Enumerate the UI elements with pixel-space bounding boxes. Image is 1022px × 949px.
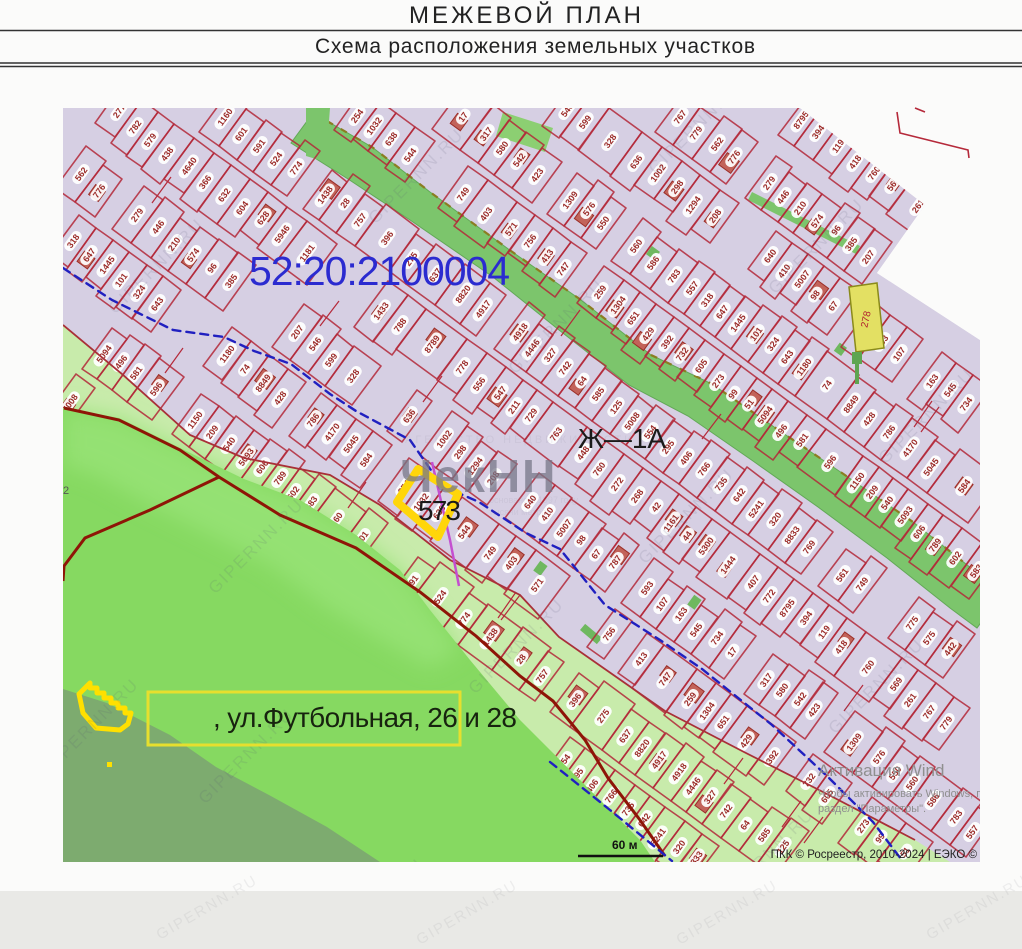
svg-text:60 м: 60 м <box>612 838 638 852</box>
svg-text:ПКК © Росреестр, 2010-2024 | Е: ПКК © Росреестр, 2010-2024 | ЕЭКО © <box>771 849 978 861</box>
svg-text:Активация Wind: Активация Wind <box>818 761 944 780</box>
svg-text:, ул.Футбольная, 26 и 28: , ул.Футбольная, 26 и 28 <box>213 702 517 733</box>
svg-text:Ж—1А: Ж—1А <box>578 423 666 454</box>
svg-text:2: 2 <box>63 485 69 497</box>
svg-text:МЕЖЕВОЙ ПЛАН: МЕЖЕВОЙ ПЛАН <box>409 1 645 29</box>
svg-text:раздел "Параметры".: раздел "Параметры". <box>818 803 926 815</box>
svg-text:основано в 1997 году: основано в 1997 году <box>489 495 579 505</box>
svg-text:тысячи метров: тысячи метров <box>489 507 551 517</box>
svg-text:Схема расположения земельных у: Схема расположения земельных участков <box>315 35 755 58</box>
svg-text:573: 573 <box>418 495 461 526</box>
svg-text:52:20:2100004: 52:20:2100004 <box>249 248 510 294</box>
